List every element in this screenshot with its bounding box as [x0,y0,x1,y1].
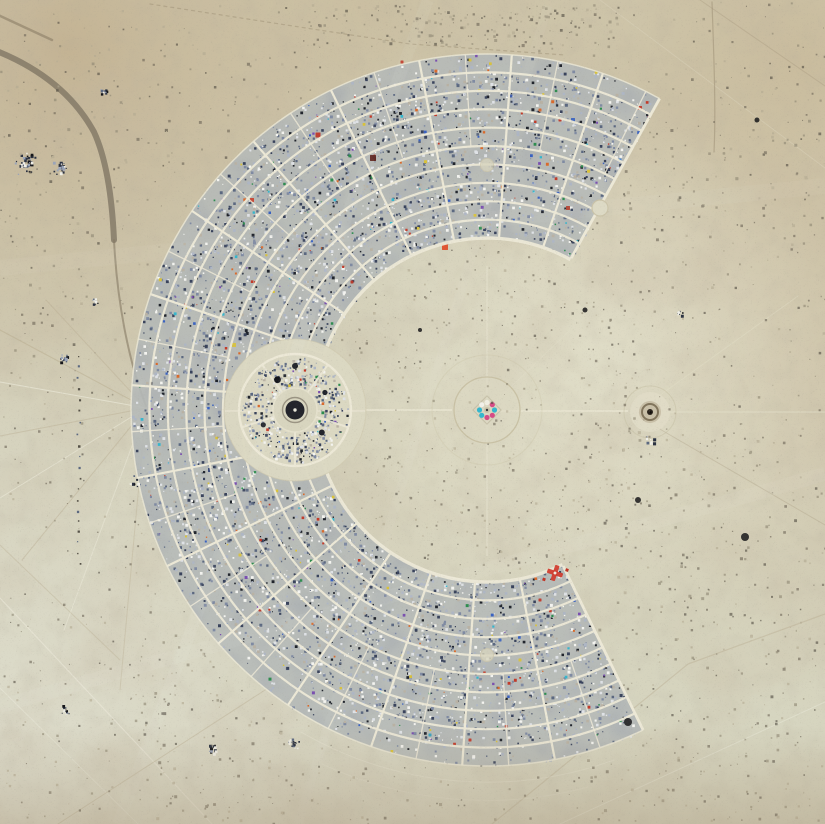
photo-grain [0,0,825,824]
aerial-photo-canvas: Aerial satellite photograph of a C-shape… [0,0,825,824]
satellite-image: Aerial satellite photograph of a C-shape… [0,0,825,824]
